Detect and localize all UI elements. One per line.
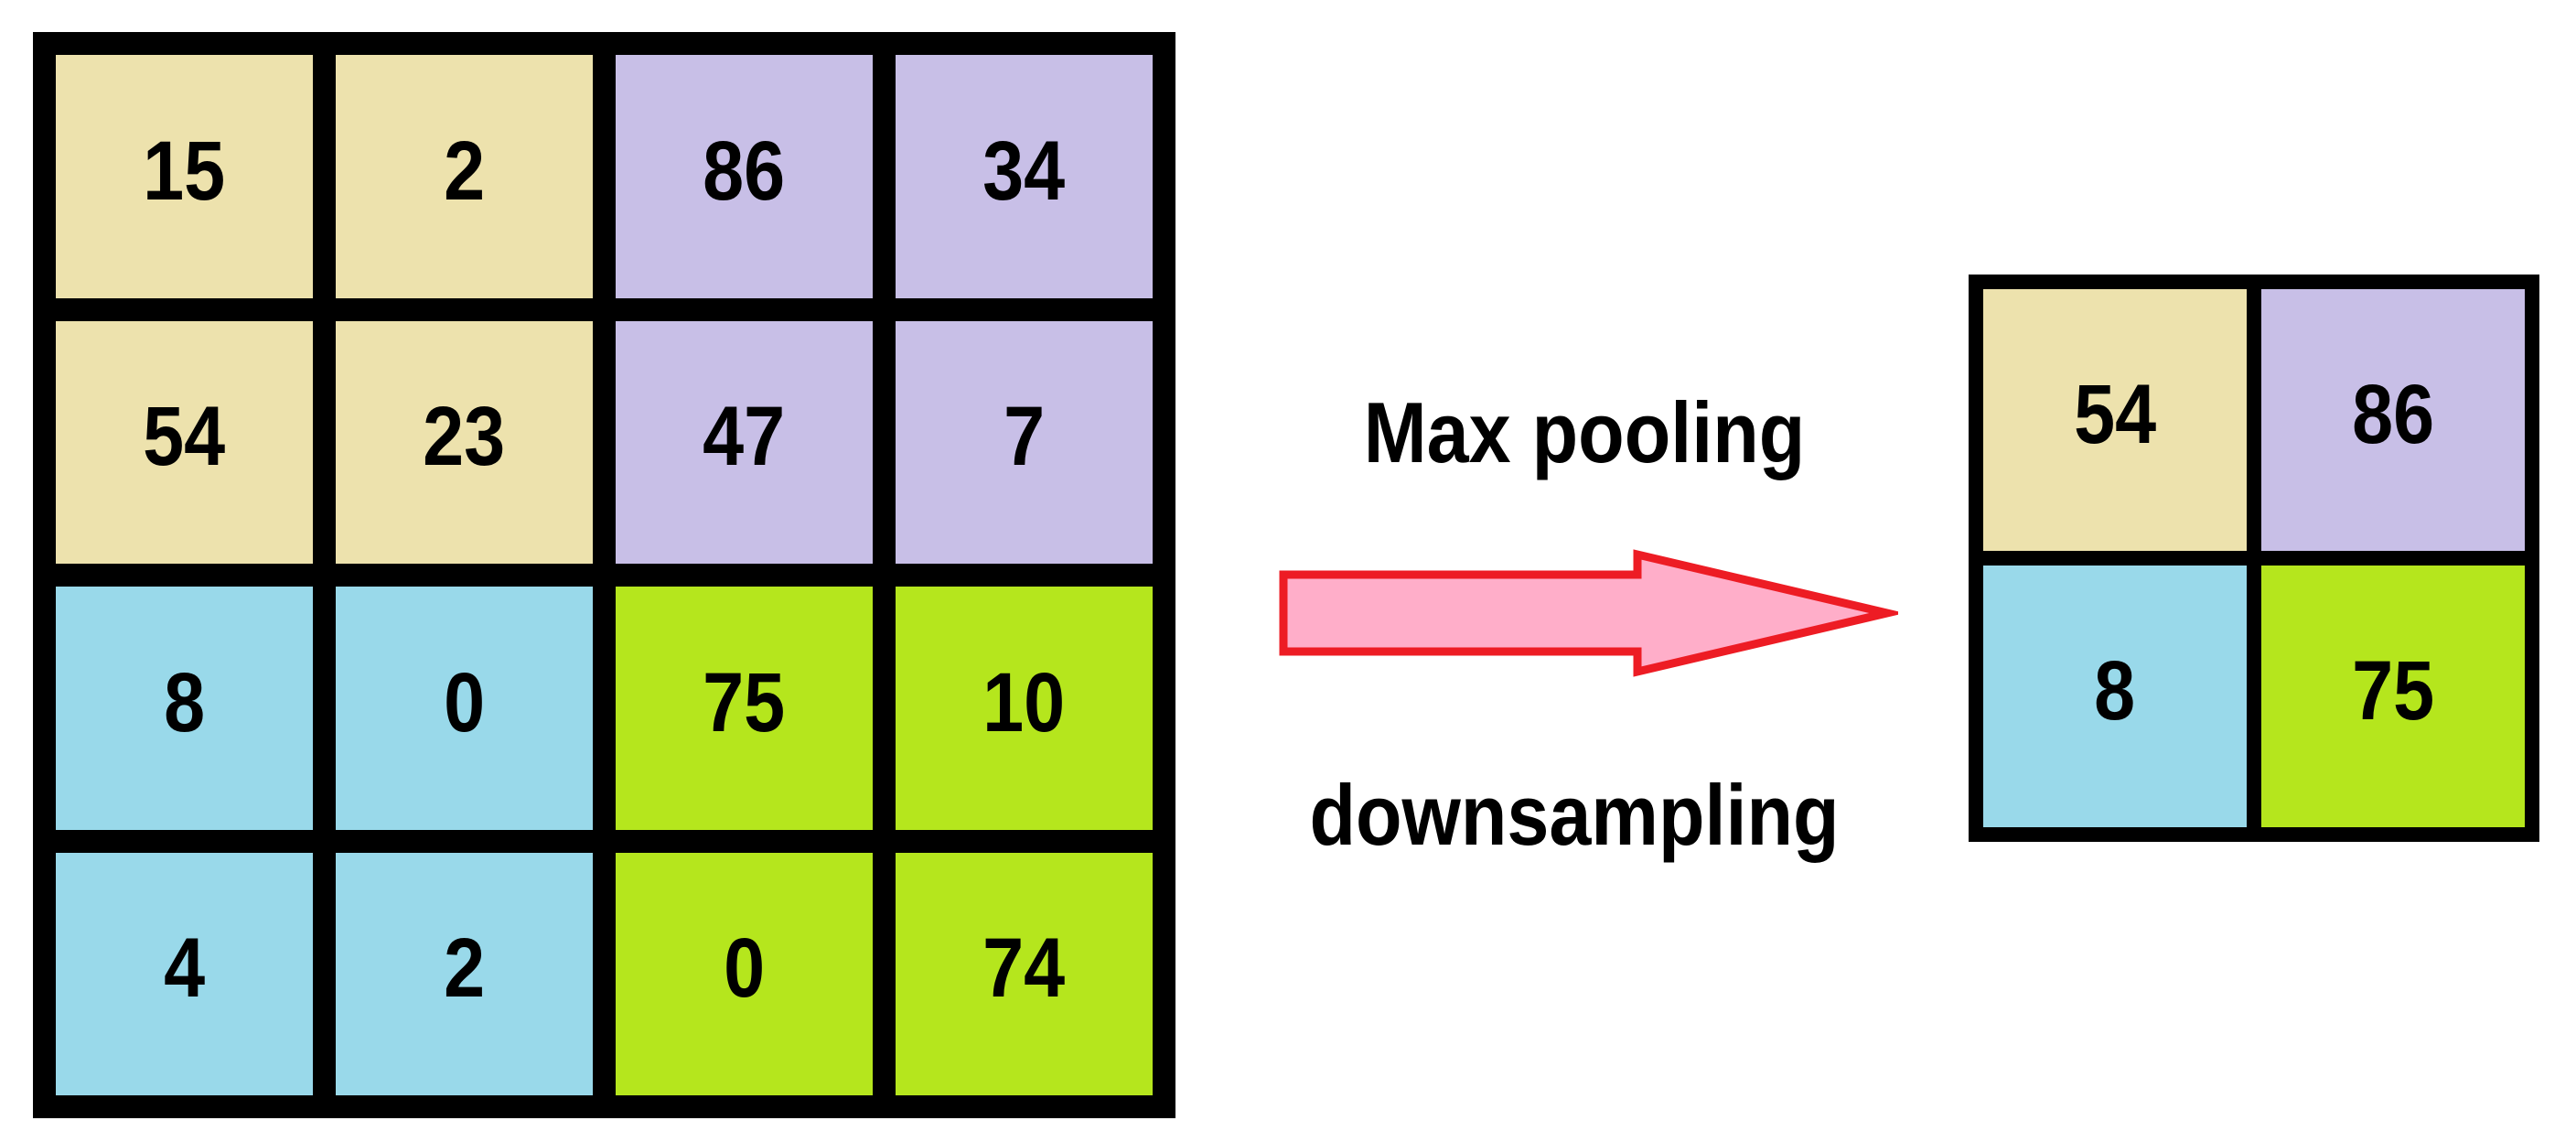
input-cell-r2c2: 23 xyxy=(336,321,593,565)
output-cell-r2c1: 8 xyxy=(1983,566,2247,827)
cell-value: 47 xyxy=(703,394,785,479)
downsampling-label: downsampling xyxy=(1301,770,1848,861)
input-cell-r1c2: 2 xyxy=(336,55,593,298)
pooled-output-grid: 5486875 xyxy=(1969,275,2539,842)
cell-value: 54 xyxy=(143,394,225,479)
input-cell-r2c3: 47 xyxy=(616,321,873,565)
cell-value: 2 xyxy=(444,926,485,1010)
input-cell-r1c1: 15 xyxy=(56,55,313,298)
input-cell-r3c4: 10 xyxy=(896,587,1153,830)
cell-value: 4 xyxy=(164,926,205,1010)
input-cell-r1c3: 86 xyxy=(616,55,873,298)
output-cell-r2c2: 75 xyxy=(2261,566,2525,827)
output-cell-r1c2: 86 xyxy=(2261,289,2525,551)
cell-value: 8 xyxy=(2094,649,2135,733)
input-cell-r3c3: 75 xyxy=(616,587,873,830)
input-cell-r4c2: 2 xyxy=(336,853,593,1096)
cell-value: 86 xyxy=(703,129,785,213)
cell-value: 10 xyxy=(982,661,1065,745)
cell-value: 54 xyxy=(2074,372,2156,457)
input-cell-r4c1: 4 xyxy=(56,853,313,1096)
cell-value: 75 xyxy=(703,661,785,745)
max-pooling-diagram: 1528634542347780751042074 Max pooling do… xyxy=(0,0,2576,1142)
cell-value: 0 xyxy=(444,661,485,745)
cell-value: 86 xyxy=(2352,372,2434,457)
cell-value: 23 xyxy=(423,394,505,479)
cell-value: 75 xyxy=(2352,649,2434,733)
input-cell-r4c4: 74 xyxy=(896,853,1153,1096)
cell-value: 15 xyxy=(143,129,225,213)
input-cell-r4c3: 0 xyxy=(616,853,873,1096)
max-pooling-label: Max pooling xyxy=(1311,388,1858,479)
cell-value: 7 xyxy=(1004,394,1045,479)
cell-value: 8 xyxy=(164,661,205,745)
output-cell-r1c1: 54 xyxy=(1983,289,2247,551)
cell-value: 0 xyxy=(724,926,765,1010)
input-cell-r2c1: 54 xyxy=(56,321,313,565)
cell-value: 74 xyxy=(982,926,1065,1010)
right-arrow-icon xyxy=(1276,547,1898,680)
input-cell-r1c4: 34 xyxy=(896,55,1153,298)
input-cell-r3c1: 8 xyxy=(56,587,313,830)
cell-value: 34 xyxy=(982,129,1065,213)
block-arrow-shape xyxy=(1283,555,1887,672)
input-cell-r2c4: 7 xyxy=(896,321,1153,565)
input-feature-map-grid: 1528634542347780751042074 xyxy=(33,32,1175,1118)
input-cell-r3c2: 0 xyxy=(336,587,593,830)
cell-value: 2 xyxy=(444,129,485,213)
